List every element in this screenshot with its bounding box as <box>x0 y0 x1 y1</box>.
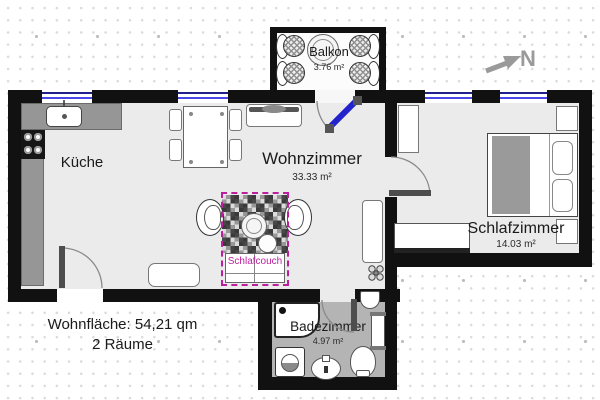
wall-bath-left <box>258 289 272 390</box>
dining-chair <box>169 139 182 161</box>
armchair-right-seat <box>287 205 304 230</box>
entrance-opening <box>57 289 103 302</box>
sideboard-handle <box>262 105 286 113</box>
room-area-badezimmer: 4.97 m² <box>276 336 380 346</box>
bed-pillow <box>552 141 573 175</box>
balcony-wall-left <box>270 27 277 90</box>
bedroom-door-opening <box>385 157 397 197</box>
summary-area: Wohnfläche: 54,21 qm <box>25 317 220 333</box>
nightstand-top <box>556 106 578 131</box>
room-label-balkon: Balkon <box>299 45 359 59</box>
schlafcouch-outline <box>221 192 289 286</box>
floor-plan: Schlafcouch Küche Wohnzimmer 33.33 m² Sc… <box>0 0 600 400</box>
compass-label: N <box>515 47 541 70</box>
room-label-wohnzimmer: Wohnzimmer <box>242 150 382 168</box>
armchair-left-seat <box>204 205 221 230</box>
stove-burner <box>34 146 42 154</box>
stove-burner <box>34 133 42 141</box>
dining-chair <box>229 139 242 161</box>
schlafcouch-label: Schlafcouch <box>221 257 289 268</box>
summary-rooms: 2 Räume <box>25 337 220 353</box>
bed-line <box>549 134 550 216</box>
shelf <box>362 200 383 263</box>
wall-left <box>8 90 21 302</box>
dining-table <box>183 106 228 168</box>
stove-burner <box>24 146 32 154</box>
toilet-base <box>356 370 370 377</box>
window-kitchen <box>42 90 92 103</box>
wardrobe <box>398 105 419 153</box>
bed-blanket <box>492 136 530 214</box>
shower-head <box>279 307 286 314</box>
wall-divider-upper <box>385 103 397 157</box>
basin-drain <box>324 366 328 373</box>
dining-chair <box>229 109 242 131</box>
room-area-balkon: 3.76 m² <box>299 62 359 72</box>
window-bedroom-2 <box>500 90 547 103</box>
room-area-wohnzimmer: 33.33 m² <box>242 172 382 183</box>
balcony-door-opening <box>315 90 355 103</box>
bench <box>148 263 200 287</box>
north-arrow-shaft <box>486 63 507 71</box>
stove-burner <box>24 133 32 141</box>
bed-pillow <box>552 179 573 212</box>
bathroom-door-opening <box>320 289 355 302</box>
radiator-cap <box>370 346 386 350</box>
room-label-badezimmer: Badezimmer <box>276 320 380 334</box>
balcony-wall-top <box>270 27 386 33</box>
kitchen-sink-drain <box>62 114 67 119</box>
room-label-kueche: Küche <box>42 155 122 171</box>
basin-tap <box>322 355 330 362</box>
washing-machine-door <box>281 354 299 372</box>
room-label-schlafzimmer: Schlafzimmer <box>446 221 586 238</box>
wall-bedroom-bottom <box>385 253 592 267</box>
room-area-schlafzimmer: 14.03 m² <box>446 239 586 250</box>
window-bedroom-1 <box>425 90 472 103</box>
dining-chair <box>169 109 182 131</box>
balcony-wall-right <box>379 27 386 90</box>
radiator-cap <box>370 312 386 316</box>
window-dining <box>178 90 228 103</box>
